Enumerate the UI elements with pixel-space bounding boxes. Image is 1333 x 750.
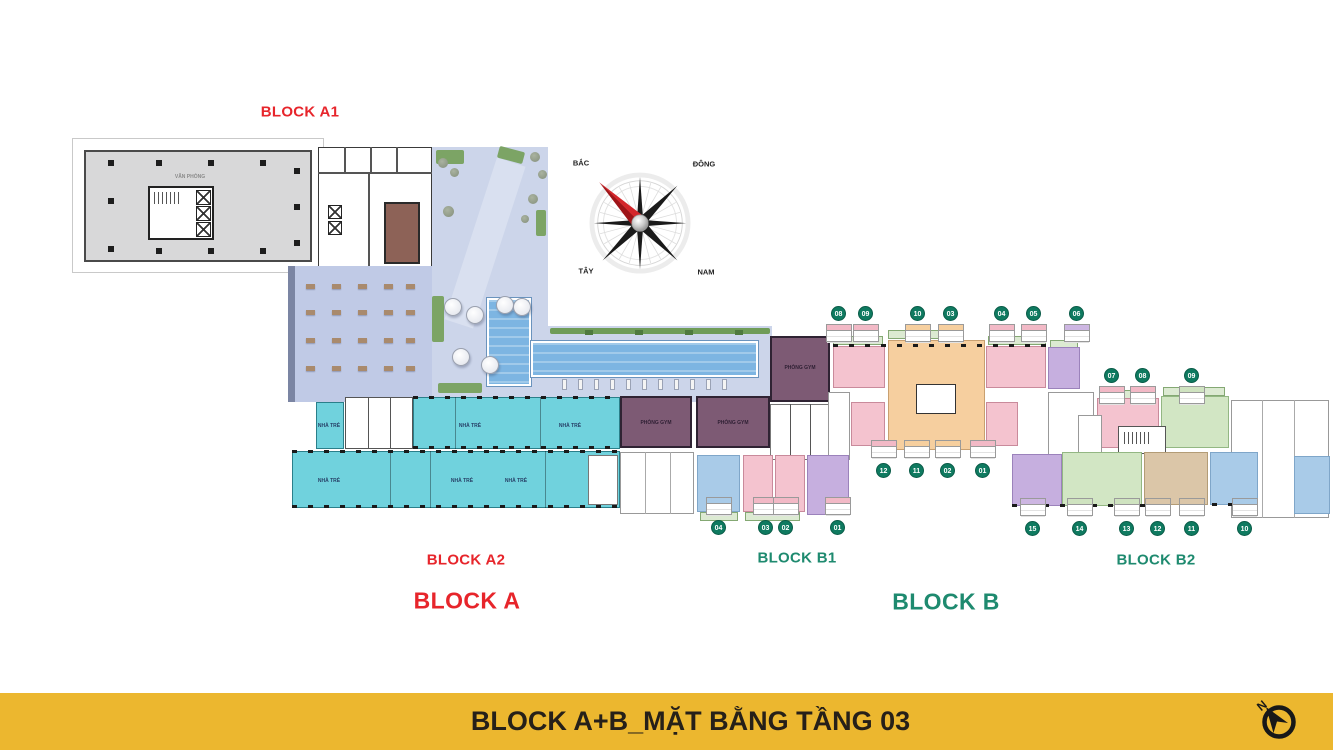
lounge-chair-icon xyxy=(642,379,647,390)
unit-info-table xyxy=(773,497,799,515)
unit-number-badge: 02 xyxy=(778,520,793,535)
column-marker xyxy=(108,160,114,166)
umbrella-icon xyxy=(513,298,531,316)
unit-number-badge: 05 xyxy=(1026,306,1041,321)
room-label: NHÀ TRẺ xyxy=(318,478,340,484)
daycare-service-room xyxy=(588,455,618,505)
table-icon xyxy=(384,338,393,343)
annex-partition xyxy=(344,147,346,172)
elevator-shaft xyxy=(196,222,211,237)
unit-info-table xyxy=(853,324,879,342)
table-icon xyxy=(358,338,367,343)
unit-number-badge: 02 xyxy=(940,463,955,478)
b2-partition xyxy=(1262,400,1263,518)
room-label: VĂN PHÒNG xyxy=(175,174,205,180)
lounge-chair-icon xyxy=(626,379,631,390)
compass-hub xyxy=(632,215,648,231)
table-icon xyxy=(332,366,341,371)
table-icon xyxy=(332,284,341,289)
unit-info-table xyxy=(905,324,931,342)
apartment-unit-pink xyxy=(833,346,885,388)
cad-partition xyxy=(645,452,646,514)
unit-table-row xyxy=(826,510,850,516)
unit-number-badge: 06 xyxy=(1069,306,1084,321)
unit-number-badge: 09 xyxy=(1184,368,1199,383)
unit-info-table xyxy=(825,497,851,515)
unit-table-row xyxy=(1115,511,1139,517)
service-rooms xyxy=(770,404,830,460)
unit-info-table xyxy=(935,440,961,458)
table-icon xyxy=(406,338,415,343)
unit-info-table xyxy=(938,324,964,342)
annex-partition xyxy=(318,172,432,174)
planter-icon xyxy=(585,330,593,335)
label-block-b1: BLOCK B1 xyxy=(757,550,836,567)
unit-info-table xyxy=(1179,498,1205,516)
title-bar: BLOCK A+B_MẶT BẰNG TẦNG 03 N xyxy=(0,693,1333,750)
table-icon xyxy=(358,284,367,289)
unit-table-row xyxy=(1068,511,1092,517)
planter-icon xyxy=(735,330,743,335)
landscape-patch xyxy=(536,210,546,236)
unit-number-badge: 04 xyxy=(994,306,1009,321)
cad-rooms-left xyxy=(620,452,694,514)
wall-ticks xyxy=(833,344,1046,347)
unit-table-row xyxy=(939,337,963,343)
unit-info-table xyxy=(989,324,1015,342)
tree-icon xyxy=(530,152,540,162)
column-marker xyxy=(260,160,266,166)
lounge-chair-icon xyxy=(722,379,727,390)
unit-table-row xyxy=(1022,337,1046,343)
unit-table-row xyxy=(854,337,878,343)
umbrella-icon xyxy=(444,298,462,316)
umbrella-icon xyxy=(481,356,499,374)
core-partition xyxy=(390,397,391,449)
unit-number-badge: 03 xyxy=(758,520,773,535)
elevator-shaft xyxy=(196,190,211,205)
unit-info-table xyxy=(1099,386,1125,404)
unit-info-table xyxy=(904,440,930,458)
unit-info-table xyxy=(970,440,996,458)
table-icon xyxy=(332,310,341,315)
compass-label-north: BẮC xyxy=(573,159,589,168)
unit-number-badge: 01 xyxy=(975,463,990,478)
unit-info-table xyxy=(1145,498,1171,516)
unit-table-row xyxy=(774,510,798,516)
floor-plan-canvas: BẮC ĐÔNG TÂY NAM BLOCK A1 BLOCK A2 BLOCK… xyxy=(0,0,1333,750)
wall-ticks xyxy=(292,450,620,453)
tree-icon xyxy=(528,194,538,204)
lounge-chair-icon xyxy=(690,379,695,390)
unit-table-row xyxy=(936,453,960,459)
compass-label-east: ĐÔNG xyxy=(693,160,716,169)
unit-info-table xyxy=(1179,386,1205,404)
unit-number-badge: 04 xyxy=(711,520,726,535)
unit-table-row xyxy=(872,453,896,459)
lounge-chair-icon xyxy=(658,379,663,390)
table-icon xyxy=(406,310,415,315)
wall-ticks xyxy=(292,505,620,508)
daycare-partition xyxy=(455,397,456,449)
service-partition xyxy=(810,404,811,460)
table-icon xyxy=(306,338,315,343)
lounge-chair-icon xyxy=(562,379,567,390)
unit-table-row xyxy=(1180,511,1204,517)
lounge-chair-icon xyxy=(674,379,679,390)
compass-label-south: NAM xyxy=(697,268,714,277)
table-icon xyxy=(332,338,341,343)
column-marker xyxy=(260,248,266,254)
unit-number-badge: 07 xyxy=(1104,368,1119,383)
block-a2-core xyxy=(345,397,413,449)
unit-info-table xyxy=(1130,386,1156,404)
unit-number-badge: 08 xyxy=(1135,368,1150,383)
unit-table-row xyxy=(905,453,929,459)
tree-icon xyxy=(443,206,454,217)
north-arrow-icon: N xyxy=(1255,696,1301,742)
unit-number-badge: 01 xyxy=(830,520,845,535)
cad-partition xyxy=(670,452,671,514)
apartment-unit-blue xyxy=(1294,456,1330,514)
umbrella-icon xyxy=(466,306,484,324)
terrace-edge xyxy=(288,266,295,402)
lounge-chair-icon xyxy=(610,379,615,390)
daycare-partition xyxy=(430,451,431,508)
annex-partition xyxy=(368,172,370,271)
unit-info-table xyxy=(1064,324,1090,342)
tree-icon xyxy=(538,170,547,179)
service-partition xyxy=(790,404,791,460)
column-marker xyxy=(294,168,300,174)
unit-number-badge: 13 xyxy=(1119,521,1134,536)
b1-core xyxy=(916,384,956,414)
unit-number-badge: 03 xyxy=(943,306,958,321)
unit-number-badge: 12 xyxy=(876,463,891,478)
stair-hatch xyxy=(1124,432,1150,444)
landscape-patch xyxy=(438,383,482,393)
apartment-unit-pink xyxy=(986,346,1046,388)
elevator-shaft xyxy=(328,221,342,235)
unit-info-table xyxy=(826,324,852,342)
unit-table-row xyxy=(1146,511,1170,517)
room-label: NHÀ TRẺ xyxy=(451,478,473,484)
unit-table-row xyxy=(990,337,1014,343)
unit-number-badge: 10 xyxy=(1237,521,1252,536)
unit-table-row xyxy=(1180,399,1204,405)
elevator-shaft xyxy=(196,206,211,221)
annex-partition xyxy=(370,147,372,172)
unit-number-badge: 14 xyxy=(1072,521,1087,536)
unit-info-table xyxy=(1232,498,1258,516)
unit-info-table xyxy=(1067,498,1093,516)
room-label: PHÒNG GYM xyxy=(640,420,671,426)
unit-table-row xyxy=(971,453,995,459)
unit-info-table xyxy=(1114,498,1140,516)
landscape-patch xyxy=(432,296,444,342)
unit-number-badge: 09 xyxy=(858,306,873,321)
unit-number-badge: 15 xyxy=(1025,521,1040,536)
column-marker xyxy=(208,248,214,254)
unit-table-row xyxy=(1100,399,1124,405)
room-label: NHÀ TRẺ xyxy=(559,423,581,429)
column-marker xyxy=(108,246,114,252)
lounge-chair-icon xyxy=(594,379,599,390)
unit-table-row xyxy=(1233,511,1257,517)
wall-ticks xyxy=(413,446,620,449)
table-icon xyxy=(384,284,393,289)
column-marker xyxy=(108,198,114,204)
lounge-chair-icon xyxy=(706,379,711,390)
room-label: NHÀ TRẺ xyxy=(459,423,481,429)
table-icon xyxy=(358,310,367,315)
table-icon xyxy=(306,284,315,289)
unit-table-row xyxy=(827,337,851,343)
b1-lobby xyxy=(828,392,850,460)
tree-icon xyxy=(438,158,448,168)
room-label: PHÒNG GYM xyxy=(717,420,748,426)
page-title: BLOCK A+B_MẶT BẰNG TẦNG 03 xyxy=(0,705,1333,736)
unit-number-badge: 11 xyxy=(909,463,924,478)
tree-icon xyxy=(521,215,529,223)
technical-room xyxy=(384,202,420,264)
unit-table-row xyxy=(1065,337,1089,343)
column-marker xyxy=(294,204,300,210)
tree-icon xyxy=(450,168,459,177)
room-label: NHÀ TRẺ xyxy=(318,423,340,429)
unit-table-row xyxy=(1131,399,1155,405)
room-label: NHÀ TRẺ xyxy=(505,478,527,484)
unit-table-row xyxy=(906,337,930,343)
table-icon xyxy=(358,366,367,371)
table-icon xyxy=(406,284,415,289)
unit-info-table xyxy=(1020,498,1046,516)
table-icon xyxy=(306,310,315,315)
elevator-shaft xyxy=(328,205,342,219)
table-icon xyxy=(384,366,393,371)
umbrella-icon xyxy=(496,296,514,314)
annex-partition xyxy=(396,147,398,172)
column-marker xyxy=(294,240,300,246)
column-marker xyxy=(156,248,162,254)
unit-number-badge: 11 xyxy=(1184,521,1199,536)
umbrella-icon xyxy=(452,348,470,366)
unit-table-row xyxy=(707,510,731,516)
label-block-a2: BLOCK A2 xyxy=(427,552,506,569)
swimming-pool-lap xyxy=(531,341,758,377)
table-icon xyxy=(384,310,393,315)
daycare-partition xyxy=(390,451,391,508)
room-label: PHÒNG GYM xyxy=(784,365,815,371)
compass-rose xyxy=(565,150,715,300)
unit-info-table xyxy=(706,497,732,515)
planter-icon xyxy=(635,330,643,335)
wall-ticks xyxy=(413,396,620,399)
label-block-a1: BLOCK A1 xyxy=(261,104,340,121)
daycare-partition xyxy=(545,451,546,508)
column-marker xyxy=(156,160,162,166)
label-block-b2: BLOCK B2 xyxy=(1116,552,1195,569)
daycare-band-upper xyxy=(413,397,620,449)
unit-info-table xyxy=(1021,324,1047,342)
lounge-chair-icon xyxy=(578,379,583,390)
apartment-unit-purple xyxy=(1048,347,1080,389)
unit-table-row xyxy=(1021,511,1045,517)
label-block-b: BLOCK B xyxy=(892,589,1000,616)
planter-icon xyxy=(685,330,693,335)
unit-info-table xyxy=(871,440,897,458)
table-icon xyxy=(406,366,415,371)
column-marker xyxy=(208,160,214,166)
unit-number-badge: 08 xyxy=(831,306,846,321)
label-block-a: BLOCK A xyxy=(414,588,521,615)
daycare-partition xyxy=(540,397,541,449)
unit-number-badge: 10 xyxy=(910,306,925,321)
table-icon xyxy=(306,366,315,371)
unit-number-badge: 12 xyxy=(1150,521,1165,536)
compass-label-west: TÂY xyxy=(579,267,594,276)
stair-hatch xyxy=(154,192,180,204)
core-partition xyxy=(368,397,369,449)
